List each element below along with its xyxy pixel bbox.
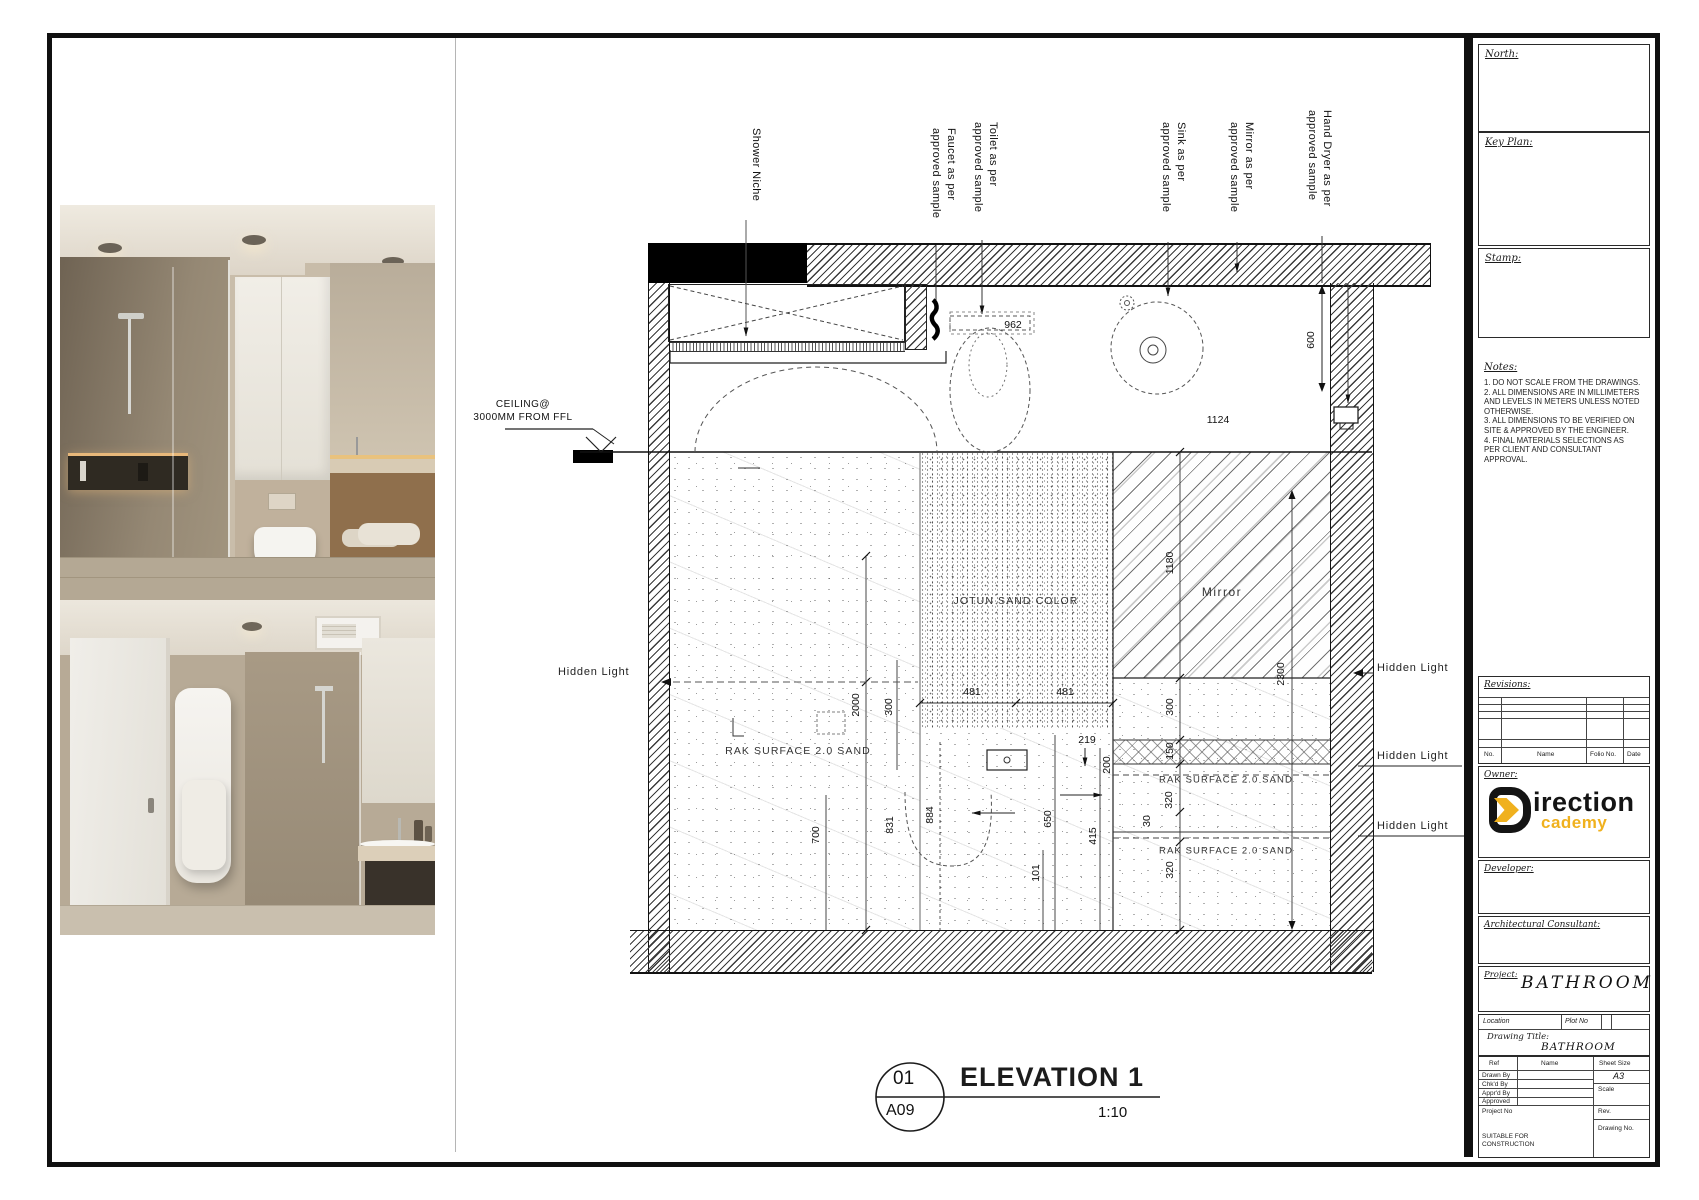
drawing-title-label: Drawing Title: [1487, 1032, 1549, 1042]
note-3: 3. ALL DIMENSIONS TO BE VERIFIED ON SITE… [1484, 416, 1642, 435]
revisions-title: Revisions: [1484, 680, 1530, 690]
ceiling-level-note: CEILING@ 3000MM FROM FFL [452, 398, 594, 424]
dim-150: 150 [1164, 742, 1176, 760]
col-name: Name [1541, 1060, 1558, 1067]
dim-320a: 320 [1163, 791, 1175, 809]
dim-700: 700 [810, 826, 822, 844]
logo-arrow-icon [1494, 798, 1519, 822]
drawing-linework [0, 0, 1699, 1200]
label-mirror: Mirror as per approved sample [1226, 122, 1256, 212]
dim-481b: 481 [1056, 686, 1074, 698]
dim-300b: 300 [1164, 698, 1176, 716]
label-hidden-light-r1: Hidden Light [1377, 662, 1448, 674]
label-hidden-light-r3: Hidden Light [1377, 820, 1448, 832]
label-hidden-light-left: Hidden Light [558, 666, 629, 678]
label-toilet: Toilet as per approved sample [970, 122, 1000, 212]
owner-label: Owner: [1484, 770, 1518, 780]
notes-title: Notes: [1484, 362, 1517, 373]
suitable-label: SUITABLE FOR CONSTRUCTION [1482, 1133, 1582, 1149]
label-shower-niche: Shower Niche [748, 128, 763, 201]
dim-600: 600 [1305, 331, 1317, 349]
project-label: Project: [1484, 970, 1518, 980]
logo-d-icon [1489, 787, 1531, 833]
logo-word-1: irection [1533, 790, 1635, 815]
label-sink: Sink as per approved sample [1158, 122, 1188, 212]
dim-219: 219 [1078, 734, 1096, 746]
dim-200: 200 [1101, 756, 1113, 774]
dim-831: 831 [884, 816, 896, 834]
dim-415: 415 [1087, 827, 1099, 845]
dim-2300: 2300 [1275, 662, 1287, 685]
dim-1180: 1180 [1164, 552, 1176, 575]
location-label: Location [1483, 1018, 1509, 1025]
project-no-label: Project No [1482, 1108, 1512, 1115]
consultant-box: Architectural Consultant: [1478, 916, 1650, 964]
developer-box: Developer: [1478, 860, 1650, 914]
sheet-ref: A09 [886, 1102, 914, 1120]
location-box: Location Plot No Drawing Title: BATHROOM [1478, 1014, 1650, 1056]
dim-884: 884 [924, 806, 936, 824]
view-scale: 1:10 [1098, 1104, 1127, 1121]
row-drawn-by: Drawn By [1482, 1072, 1510, 1079]
dim-481a: 481 [963, 686, 981, 698]
label-rak-surface-1: RAK SURFACE 2.0 SAND [725, 745, 871, 757]
row-apprd-by: Appr'd By [1482, 1090, 1510, 1097]
label-jotun-sand-color: JOTUN SAND COLOR [954, 595, 1079, 607]
col-sheet-size: Sheet Size [1599, 1060, 1630, 1067]
rev-col-name: Name [1537, 751, 1554, 758]
label-hand-dryer: Hand Dryer as per approved sample [1304, 110, 1334, 207]
dim-1124: 1124 [1207, 414, 1230, 426]
row-approved: Approved [1482, 1098, 1510, 1105]
label-mirror-region: Mirror [1202, 585, 1242, 599]
rev-col-no: No. [1484, 751, 1494, 758]
drawing-sheet: Shower Niche Faucet as per approved samp… [0, 0, 1699, 1200]
detail-number: 01 [893, 1068, 914, 1090]
rev-label: Rev. [1598, 1108, 1611, 1115]
consultant-label: Architectural Consultant: [1484, 920, 1600, 930]
project-value: BATHROOM [1521, 973, 1653, 993]
title-block-table: Ref Name Sheet Size A3 Drawn By Chk'd By… [1478, 1056, 1650, 1158]
developer-label: Developer: [1484, 864, 1534, 874]
key-plan-box: Key Plan: [1478, 132, 1650, 246]
drawing-title-value: BATHROOM [1541, 1041, 1616, 1053]
revisions-box: Revisions: No. Name Folio No. Date [1478, 676, 1650, 764]
north-label: North: [1485, 49, 1518, 60]
col-ref: Ref [1489, 1060, 1499, 1067]
dim-320b: 320 [1164, 861, 1176, 879]
note-4: 4. FINAL MATERIALS SELECTIONS AS PER CLI… [1484, 436, 1642, 465]
stamp-box: Stamp: [1478, 248, 1650, 338]
dim-101: 101 [1030, 864, 1042, 882]
dim-300a: 300 [883, 698, 895, 716]
logo-word-2: cademy [1541, 815, 1635, 831]
owner-box: Owner: irection cademy [1478, 766, 1650, 858]
rev-col-date: Date [1627, 751, 1641, 758]
stamp-label: Stamp: [1485, 253, 1521, 264]
notes-list: 1. DO NOT SCALE FROM THE DRAWINGS. 2. AL… [1484, 378, 1642, 464]
label-hidden-light-r2: Hidden Light [1377, 750, 1448, 762]
label-rak-surface-2: RAK SURFACE 2.0 SAND [1159, 775, 1293, 786]
dim-650: 650 [1042, 810, 1054, 828]
direction-academy-logo: irection cademy [1489, 787, 1635, 833]
dim-2000: 2000 [850, 693, 862, 716]
north-box: North: [1478, 44, 1650, 132]
dim-30: 30 [1141, 815, 1153, 827]
label-faucet: Faucet as per approved sample [928, 128, 958, 218]
scale-label: Scale [1598, 1086, 1614, 1093]
label-rak-surface-3: RAK SURFACE 2.0 SAND [1159, 846, 1293, 857]
plot-label: Plot No [1565, 1018, 1588, 1025]
note-2: 2. ALL DIMENSIONS ARE IN MILLIMETERS AND… [1484, 388, 1642, 417]
sheet-size-value: A3 [1613, 1071, 1624, 1081]
row-chkd-by: Chk'd By [1482, 1081, 1508, 1088]
rev-col-folio: Folio No. [1590, 751, 1616, 758]
project-box: Project: BATHROOM [1478, 966, 1650, 1012]
key-plan-label: Key Plan: [1485, 137, 1533, 148]
drawing-no-label: Drawing No. [1598, 1125, 1634, 1132]
note-1: 1. DO NOT SCALE FROM THE DRAWINGS. [1484, 378, 1642, 388]
view-title: ELEVATION 1 [960, 1062, 1144, 1093]
dim-962: 962 [1004, 319, 1022, 331]
